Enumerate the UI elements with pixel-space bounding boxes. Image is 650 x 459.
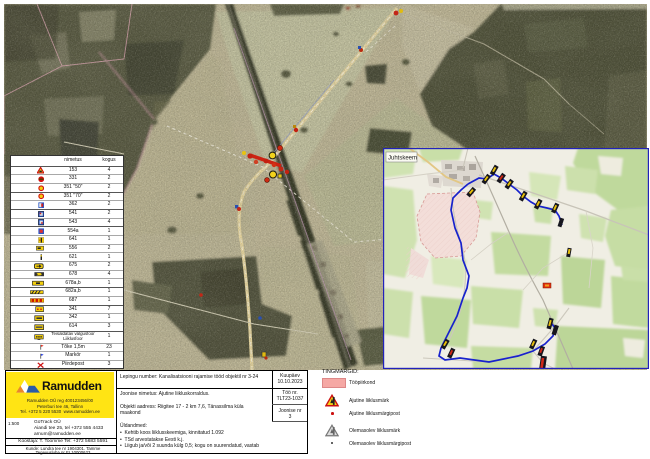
svg-text:Juhtskeem: Juhtskeem <box>388 156 417 162</box>
